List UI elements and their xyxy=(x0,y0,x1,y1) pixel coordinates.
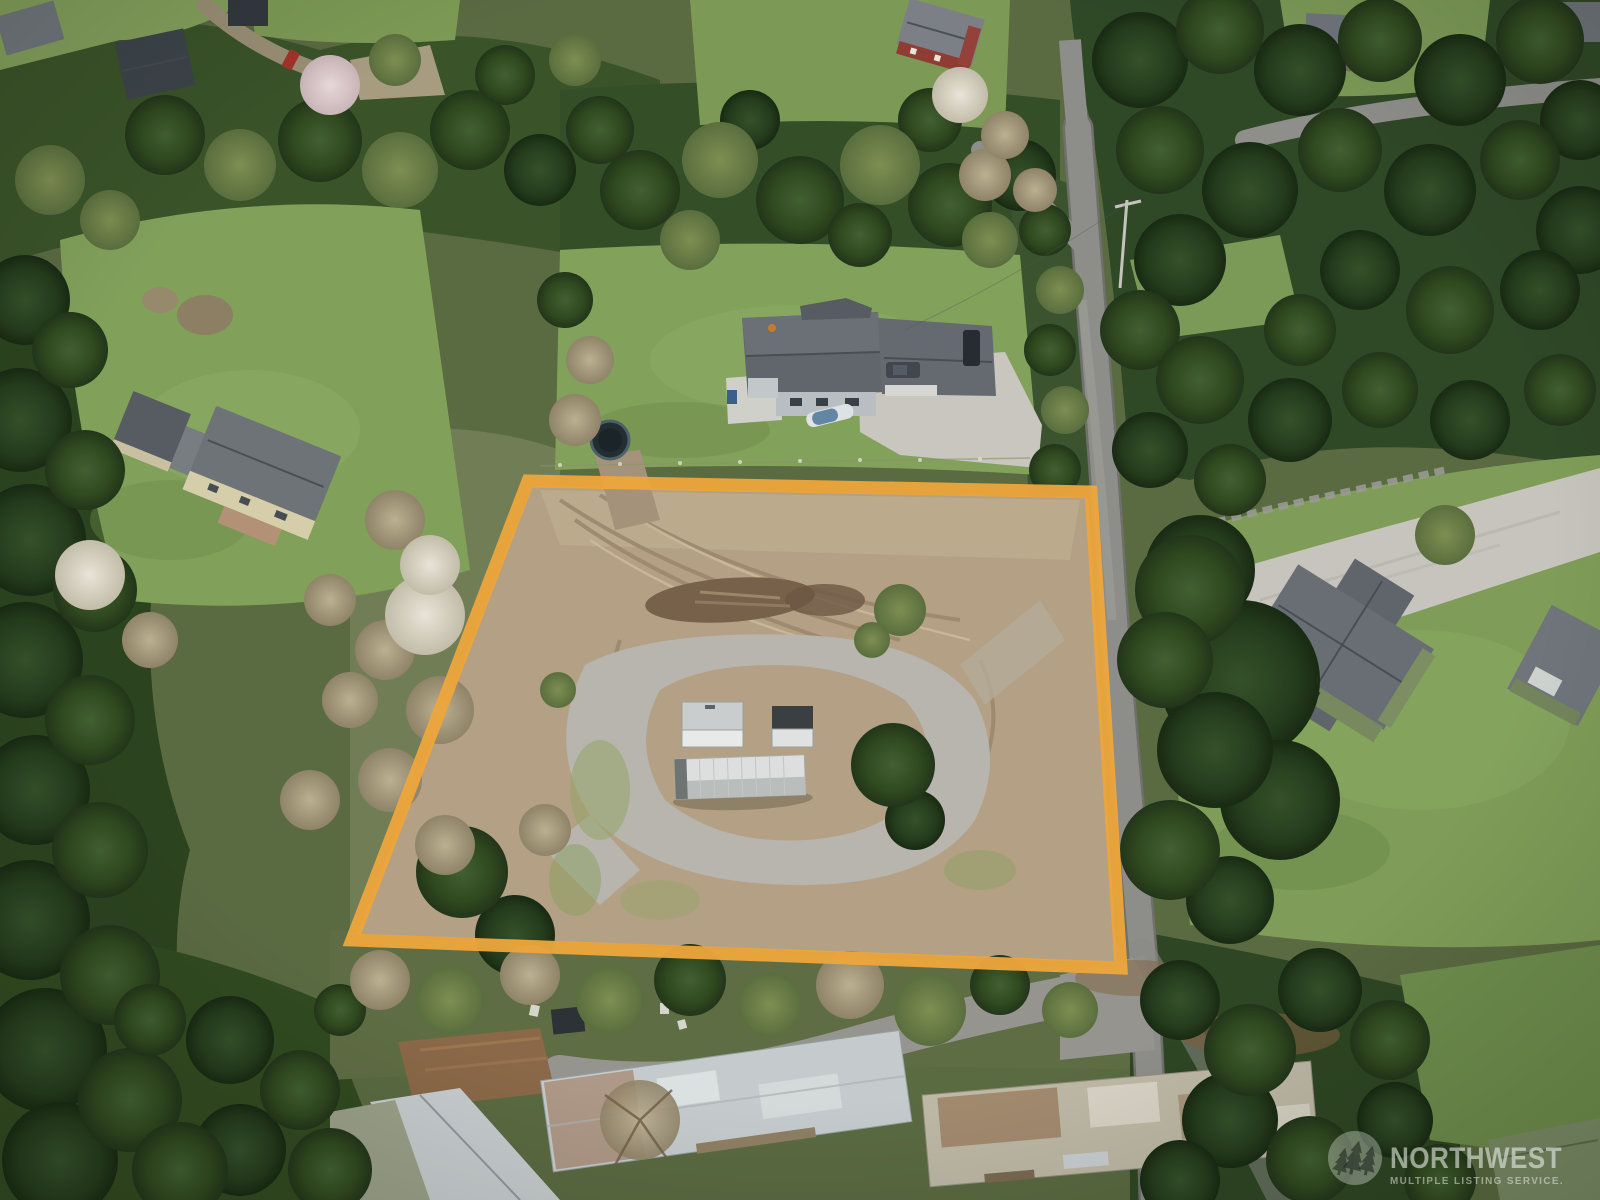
vignette xyxy=(0,0,1600,1200)
aerial-photo: NORTHWEST MULTIPLE LISTING SERVICE. xyxy=(0,0,1600,1200)
three-trees-icon xyxy=(1328,1131,1382,1185)
watermark-tagline: MULTIPLE LISTING SERVICE. xyxy=(1390,1175,1564,1187)
watermark-brand: NORTHWEST xyxy=(1390,1142,1562,1175)
aerial-scene: NORTHWEST MULTIPLE LISTING SERVICE. xyxy=(0,0,1600,1200)
